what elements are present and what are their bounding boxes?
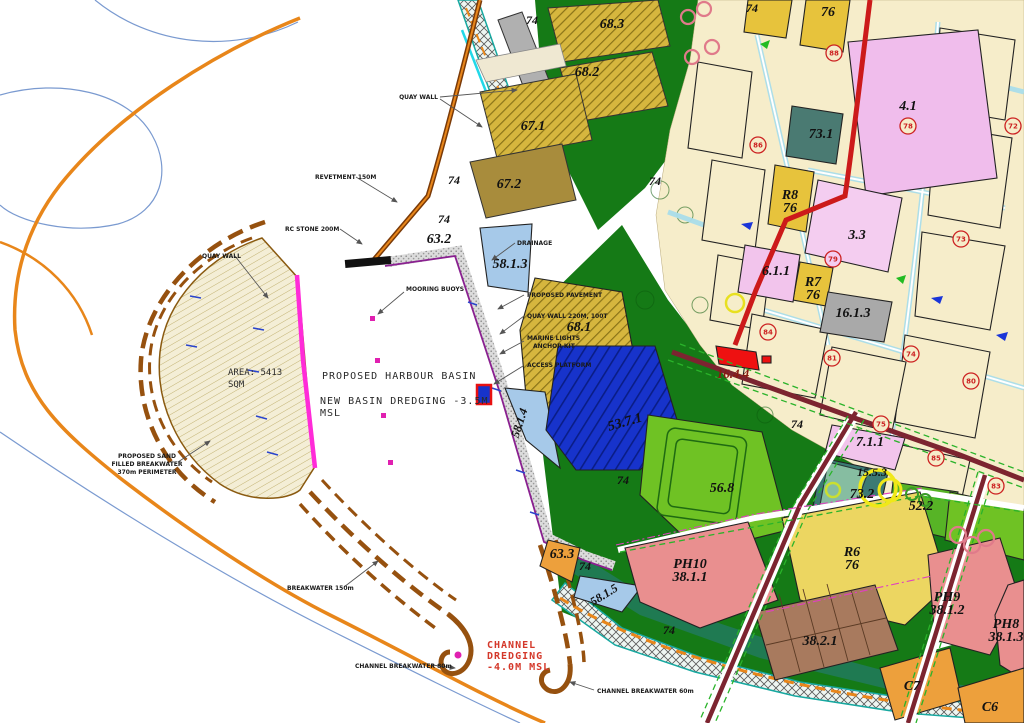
lot-circle: 80 — [966, 378, 976, 386]
label-74: 74 — [579, 559, 591, 573]
callout-drainage: DRAINAGE — [517, 240, 552, 247]
parcel-67-2 — [470, 144, 576, 218]
label-68-2: 68.2 — [575, 65, 600, 80]
label-ph8-num: 38.1.3 — [988, 630, 1024, 645]
lot-circle: 75 — [876, 421, 886, 429]
label-ph9-num: 38.1.2 — [929, 603, 965, 618]
label-3-3: 3.3 — [847, 228, 866, 243]
label-68-1: 68.1 — [567, 320, 592, 335]
lot-circle: 84 — [763, 329, 773, 337]
callout-channel-breakwater-60: CHANNEL BREAKWATER 60m — [597, 688, 694, 695]
basin-dredging-line1: NEW BASIN DREDGING -3.5M — [320, 396, 489, 407]
basin-title: PROPOSED HARBOUR BASIN — [322, 371, 476, 382]
lot-circle: 83 — [991, 483, 1001, 491]
callout-access-platform: ACCESS PLATFORM — [527, 362, 591, 369]
sand-breakwater — [141, 222, 315, 502]
label-7-1-1: 7.1.1 — [856, 435, 884, 450]
label-73-2: 73.2 — [850, 487, 875, 502]
basin-area-line1: AREA: 5413 — [228, 368, 282, 378]
callout-quay-wall-top: QUAY WALL — [399, 94, 438, 101]
site-plan-map: 78 79 72 73 84 88 86 81 74 80 75 85 83 7… — [0, 0, 1024, 723]
label-68-3: 68.3 — [600, 17, 625, 32]
label-63-3: 63.3 — [550, 547, 575, 562]
label-67-2: 67.2 — [497, 177, 522, 192]
lot-circle: 81 — [827, 355, 837, 363]
callout-proposed-pavement: PROPOSED PAVEMENT — [527, 292, 603, 299]
label-38-2-1: 38.2.1 — [802, 634, 838, 649]
quay-wall-black-segment — [345, 256, 392, 268]
lot-circle: 73 — [956, 236, 966, 244]
label-56-8: 56.8 — [710, 481, 735, 496]
label-63-2: 63.2 — [427, 232, 452, 247]
label-73-1: 73.1 — [809, 127, 834, 142]
callout-rc-stone: RC STONE 200M — [285, 226, 339, 233]
callout-channel-breakwater-80: CHANNEL BREAKWATER 80m — [355, 663, 452, 670]
channel-note-line1: CHANNEL — [487, 640, 536, 651]
callout-quay-wall-left: QUAY WALL — [202, 253, 241, 260]
parcel-4-1 — [848, 30, 997, 196]
callout-marine-lights-1: MARINE LIGHTS — [527, 335, 580, 342]
revetment-line — [372, 0, 480, 262]
lot-circle: 74 — [906, 351, 916, 359]
lot-circle: 72 — [1008, 123, 1018, 131]
label-74: 74 — [617, 473, 629, 487]
label-r5-76: 76 — [821, 5, 835, 20]
channel-note-line3: -4.0M MSL — [487, 662, 550, 673]
label-16-1-3: 16.1.3 — [836, 306, 871, 321]
label-15-5-3: 15.5.3 — [857, 465, 887, 479]
lot-circle: 78 — [903, 123, 913, 131]
callout-sand-breakwater-1: PROPOSED SAND — [118, 453, 176, 460]
label-ph10-num: 38.1.1 — [672, 570, 708, 585]
label-4-1: 4.1 — [898, 99, 917, 114]
channel-note-line2: DREDGING — [487, 651, 543, 662]
label-74: 74 — [663, 623, 675, 637]
channel-buoy-dot — [455, 652, 462, 659]
label-6-1-1: 6.1.1 — [762, 264, 790, 279]
callout-revetment: REVETMENT 150M — [315, 174, 376, 181]
callout-sand-breakwater-2: FILLED BREAKWATER — [111, 461, 182, 468]
label-74: 74 — [448, 173, 460, 187]
label-74: 74 — [438, 212, 450, 226]
basin-area-line2: SQM — [228, 380, 245, 390]
label-74: 74 — [746, 1, 758, 15]
lot-circle: 88 — [829, 50, 839, 58]
label-52-2: 52.2 — [909, 499, 934, 514]
label-74: 74 — [649, 174, 661, 188]
label-r7-76: 76 — [806, 288, 820, 303]
label-c6: C6 — [982, 700, 998, 715]
basin-dredging-line2: MSL — [320, 408, 341, 419]
callout-breakwater-150: BREAKWATER 150m — [287, 585, 354, 592]
site-plan-canvas: 78 79 72 73 84 88 86 81 74 80 75 85 83 7… — [0, 0, 1024, 723]
label-67-1: 67.1 — [521, 119, 546, 134]
label-r8-76: 76 — [783, 201, 797, 216]
label-58-1-3: 58.1.3 — [493, 257, 528, 272]
mooring-buoys-dots — [370, 316, 393, 465]
label-74: 74 — [791, 417, 803, 431]
lot-circle: 85 — [931, 455, 941, 463]
callout-marine-lights-2: ANCHOR KIT — [533, 343, 576, 350]
callout-quay-wall-220: QUAY WALL 220M, 100T — [527, 313, 608, 320]
callout-mooring-buoys: MOORING BUOYS — [406, 286, 464, 293]
label-c7: C7 — [904, 679, 921, 694]
label-16-4-4: 16.4.4 — [717, 366, 750, 381]
callout-sand-breakwater-3: 370m PERIMETER — [117, 469, 176, 476]
lot-circle: 86 — [753, 142, 763, 150]
label-74: 74 — [526, 13, 538, 27]
lot-circle: 79 — [828, 256, 838, 264]
label-r6-76: 76 — [845, 558, 859, 573]
